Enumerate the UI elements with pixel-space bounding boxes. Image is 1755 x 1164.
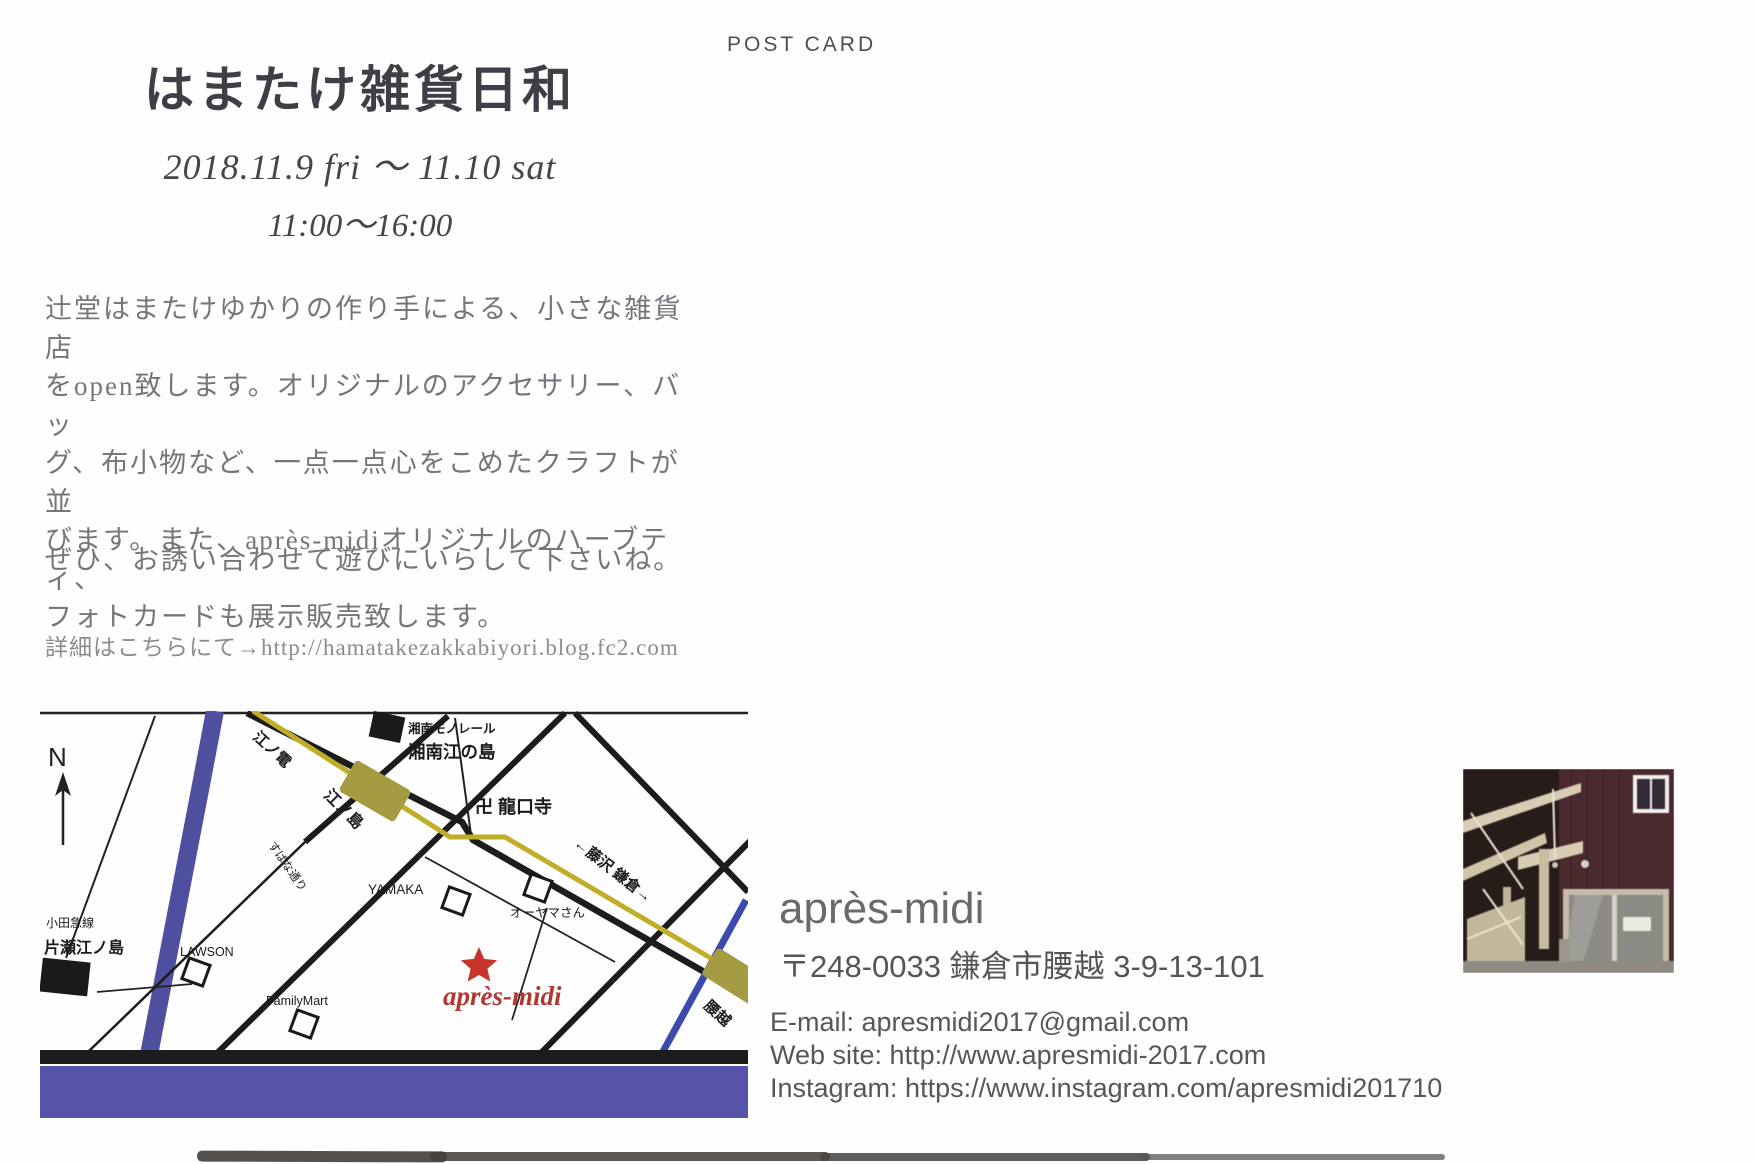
odakyu-line-label: 小田急線 (46, 915, 94, 930)
lawson-label: LAWSON (180, 945, 234, 959)
koshigoe-station-label: 腰越 (700, 996, 736, 1031)
oyama-marker (524, 874, 552, 902)
familymart-marker (290, 1010, 318, 1038)
scan-edge-artifact (1140, 1154, 1445, 1160)
sea-band (40, 1066, 748, 1118)
description-line: グ、布小物など、一点一点心をこめたクラフトが並 (45, 444, 695, 521)
access-map: N 湘南モノレール 湘南江の島 卍 龍口寺 江ノ電 江ノ島 ←藤沢 鎌倉→ すば… (40, 711, 748, 1118)
scan-edge-artifact (820, 1153, 1150, 1161)
katase-station-label: 片瀬江ノ島 (44, 938, 124, 957)
shop-website: Web site: http://www.apresmidi-2017.com (770, 1039, 1442, 1072)
scan-edge-artifact (430, 1152, 830, 1161)
photo-concrete-post (1559, 939, 1569, 963)
shop-star-marker (461, 947, 497, 982)
event-title: はまたけ雑貨日和 (60, 50, 660, 122)
lawson-marker (182, 958, 210, 986)
shop-building-photo (1463, 769, 1674, 973)
event-date: 2018.11.9 fri 〜 11.10 sat (60, 138, 660, 190)
photo-window (1633, 775, 1669, 813)
monorail-station-label: 湘南江の島 (408, 742, 496, 762)
invitation-line: ぜひ、お誘い合わせて遊びにいらして下さいね。 (45, 538, 682, 577)
event-description: 辻堂はまたけゆかりの作り手による、小さな雑貨店 をopen致します。オリジナルの… (45, 290, 695, 637)
scan-edge-artifact (197, 1151, 447, 1163)
temple-label: 卍 龍口寺 (475, 796, 552, 817)
monorail-line-label: 湘南モノレール (408, 721, 496, 736)
description-line: をopen致します。オリジナルのアクセサリー、バッ (45, 367, 695, 444)
shop-email: E-mail: apresmidi2017@gmail.com (770, 1006, 1442, 1039)
subana-street-label: すばな通り (266, 839, 310, 894)
compass-label: N (48, 742, 67, 772)
street-katase (97, 984, 192, 992)
postcard-type-label: POST CARD (727, 33, 876, 57)
shop-contacts: E-mail: apresmidi2017@gmail.com Web site… (770, 1006, 1442, 1105)
oyama-label: オーヤマさん (510, 906, 585, 920)
event-time: 11:00〜16:00 (60, 198, 660, 246)
photo-doorbell-dot (1581, 860, 1589, 868)
details-url-line: 詳細はこちらにて→http://hamatakezakkabiyori.blog… (45, 628, 679, 662)
shop-name: après-midi (779, 884, 984, 934)
shop-instagram: Instagram: https://www.instagram.com/apr… (770, 1072, 1442, 1105)
description-line: 辻堂はまたけゆかりの作り手による、小さな雑貨店 (45, 290, 695, 367)
photo-entrance-door (1563, 889, 1669, 969)
event-header: はまたけ雑貨日和 2018.11.9 fri 〜 11.10 sat 11:00… (60, 50, 660, 246)
shop-address: 〒248-0033 鎌倉市腰越 3-9-13-101 (779, 941, 1265, 986)
familymart-label: FamilyMart (266, 994, 328, 1008)
postcard-scan: POST CARD はまたけ雑貨日和 2018.11.9 fri 〜 11.10… (0, 0, 1755, 1164)
station-box-katase-enoshima (40, 958, 91, 997)
coast-road-134 (40, 1050, 748, 1064)
station-box-shonan-enoshima (369, 711, 406, 743)
map-shop-label: après-midi (443, 981, 562, 1011)
photo-lamp-dot (1552, 862, 1558, 868)
yamaka-marker (442, 887, 470, 915)
yamaka-label: YAMAKA (368, 882, 423, 897)
direction-label: ←藤沢 鎌倉→ (571, 834, 656, 906)
river-band (148, 711, 215, 1060)
